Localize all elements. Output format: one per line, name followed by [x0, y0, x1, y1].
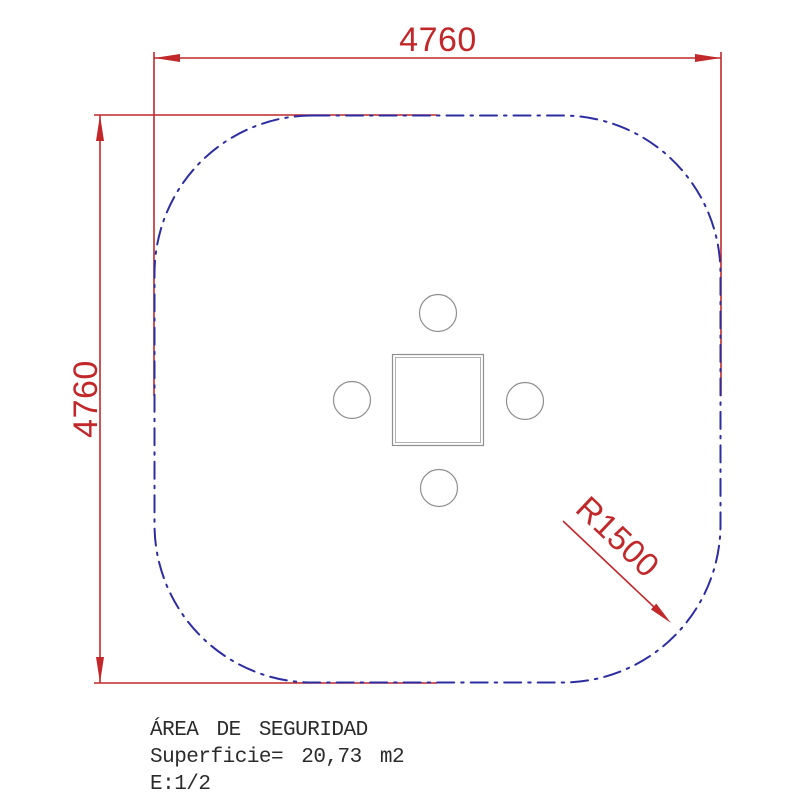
seat-circle-left: [334, 382, 371, 419]
radius-dimension-label: R1500: [569, 489, 667, 585]
safety-area-drawing: 4760 4760 R1500: [0, 0, 800, 800]
arrowhead-down-icon: [96, 657, 104, 683]
radius-dimension: R1500: [563, 489, 671, 623]
arrowhead-right-icon: [695, 54, 721, 62]
equipment-square-outer: [393, 355, 484, 446]
arrowhead-left-icon: [154, 54, 180, 62]
drawing-notes: ÁREA DE SEGURIDAD Superficie= 20,73 m2 E…: [150, 718, 404, 796]
seat-circle-right: [507, 383, 544, 420]
arrowhead-up-icon: [96, 115, 104, 141]
height-dimension-label: 4760: [67, 360, 105, 438]
width-dimension-label: 4760: [399, 21, 477, 59]
height-dimension: 4760: [67, 115, 437, 683]
scale-text: E:1/2: [150, 773, 211, 796]
area-title-text: ÁREA DE SEGURIDAD: [150, 718, 368, 742]
cad-drawing-page: 4760 4760 R1500: [0, 0, 800, 800]
seat-circle-top: [420, 295, 457, 332]
seat-circle-bottom: [421, 470, 458, 507]
arrowhead-radius-icon: [651, 604, 671, 623]
surface-text: Superficie= 20,73 m2: [150, 746, 404, 769]
width-dimension: 4760: [154, 21, 721, 396]
equipment-plan: [334, 295, 544, 507]
